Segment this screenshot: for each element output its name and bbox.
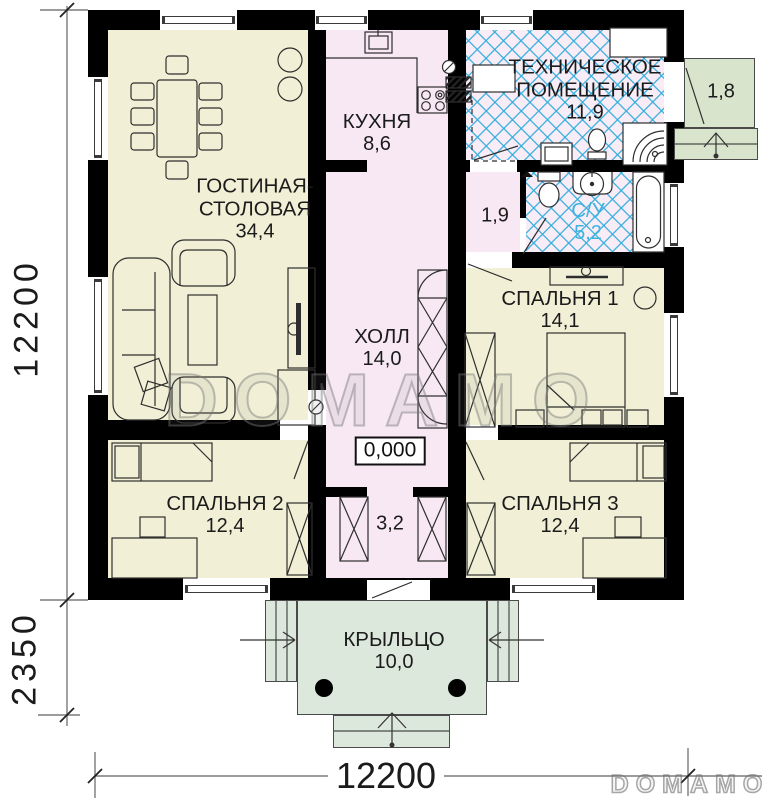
window-right-bedroom1	[664, 313, 684, 397]
side-porch-steps	[674, 128, 758, 160]
dimension-left-total: 12200	[8, 258, 47, 378]
porch-steps-left	[265, 600, 297, 682]
porch-steps-right	[487, 600, 519, 682]
opening-living-hall	[308, 390, 326, 425]
room-tambour	[326, 497, 448, 578]
label-bedroom2: СПАЛЬНЯ 2 12,4	[166, 492, 283, 538]
opening-tech-vestibule	[470, 160, 517, 172]
label-living: ГОСТИНАЯ- СТОЛОВАЯ 34,4	[196, 175, 313, 244]
opening-bedroom1-door	[466, 252, 512, 268]
label-side-porch: 1,8	[707, 81, 735, 104]
window-bottom-bedroom2	[183, 578, 270, 600]
floor-plan: ГОСТИНАЯ- СТОЛОВАЯ 34,4 КУХНЯ 8,6 ТЕХНИЧ…	[0, 0, 772, 800]
label-hall: ХОЛЛ 14,0	[354, 325, 410, 371]
label-bathroom: С/У 5,2	[571, 199, 605, 245]
opening-hall-tambour	[367, 487, 413, 497]
label-tambour: 3,2	[376, 513, 404, 536]
brand-logo: DOMAMO	[611, 771, 770, 800]
elevation-mark: 0,000	[355, 437, 426, 466]
opening-bedroom2-door	[280, 420, 308, 440]
label-kitchen: КУХНЯ 8,6	[343, 110, 411, 156]
porch-steps-bottom	[333, 715, 450, 748]
window-top-kitchen	[315, 10, 368, 30]
label-vestibule: 1,9	[481, 205, 509, 228]
window-right-bathroom	[664, 183, 684, 247]
dimension-bottom-total: 12200	[328, 755, 444, 797]
opening-entry-door	[367, 580, 430, 600]
window-left-living-2	[88, 277, 108, 395]
opening-bedroom3-door	[466, 425, 498, 440]
opening-tech-sideporch-door	[664, 62, 684, 122]
label-tech: ТЕХНИЧЕСКОЕ ПОМЕЩЕНИЕ 11,9	[509, 56, 662, 125]
opening-kitchen-hall	[367, 160, 448, 172]
window-top-living	[160, 10, 237, 30]
window-bottom-bedroom3	[510, 578, 597, 600]
window-left-living-1	[88, 77, 108, 160]
label-porch: КРЫЛЬЦО 10,0	[343, 628, 444, 674]
window-top-tech	[480, 10, 533, 30]
label-bedroom3: СПАЛЬНЯ 3 12,4	[501, 492, 618, 538]
dimension-left-porch: 2350	[6, 610, 45, 706]
label-bedroom1: СПАЛЬНЯ 1 14,1	[501, 287, 618, 333]
